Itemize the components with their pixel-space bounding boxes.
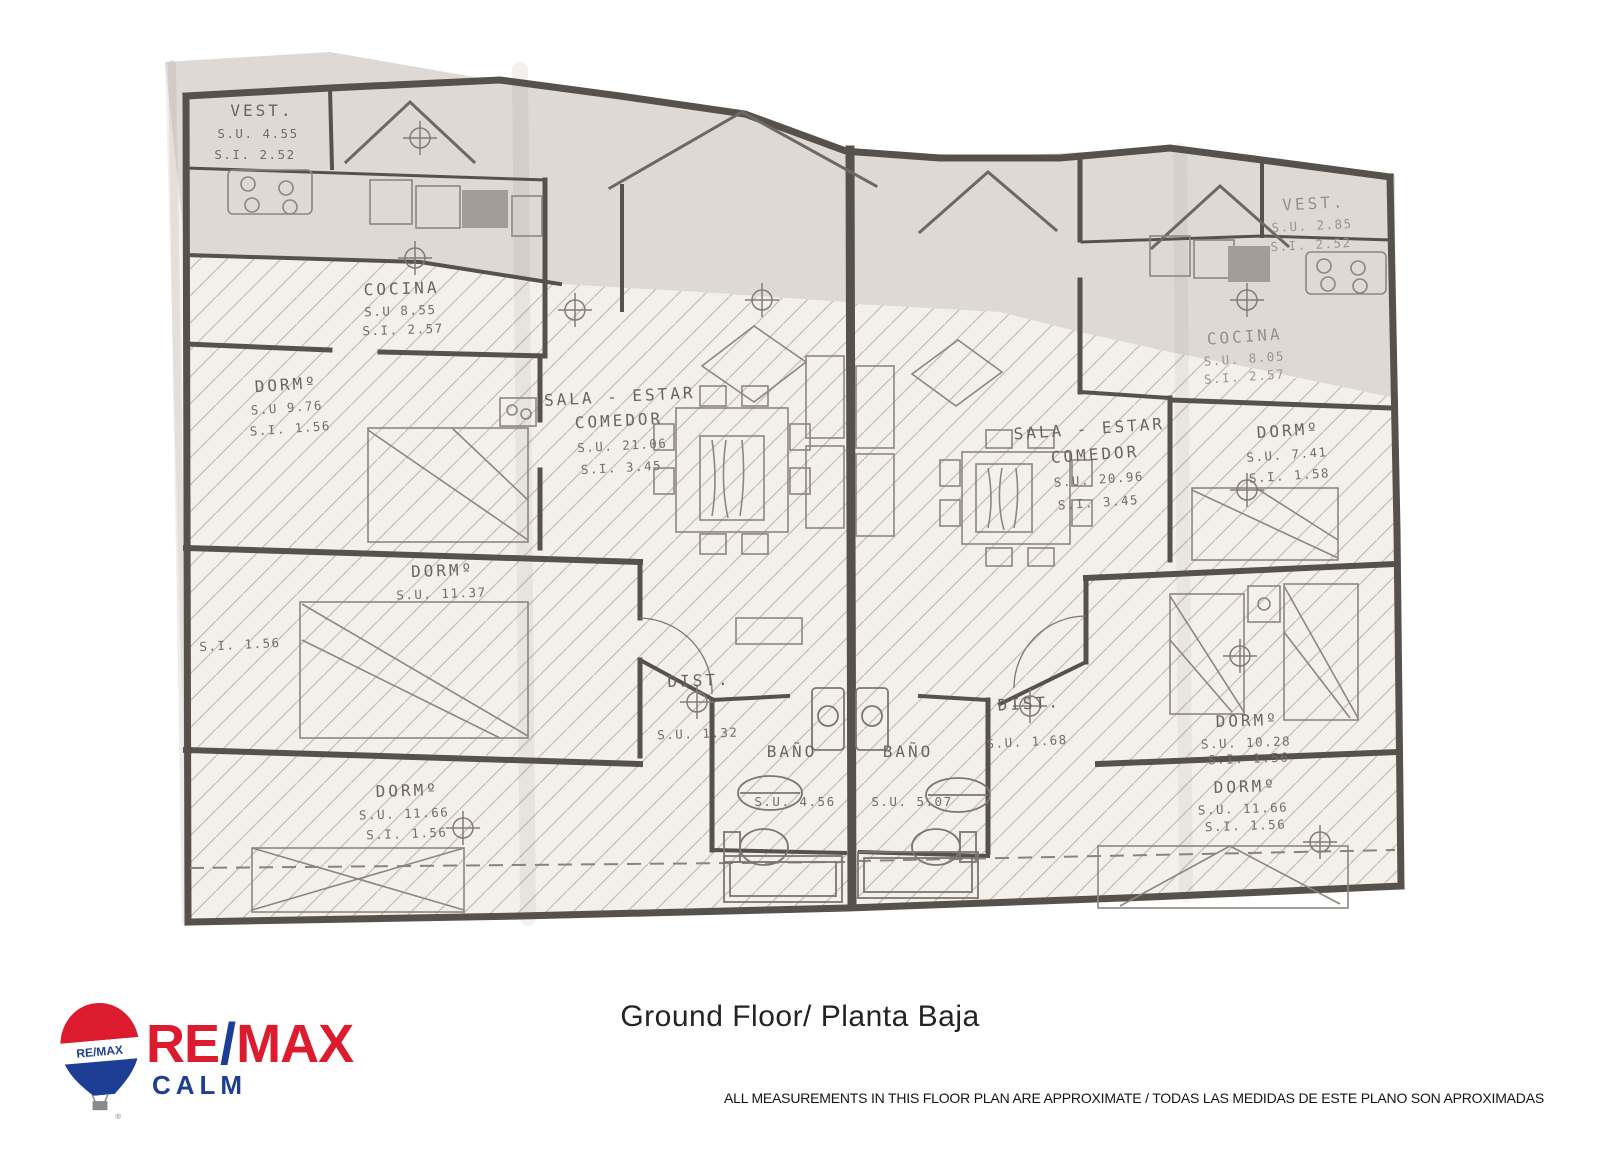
registered-mark: ® <box>115 1112 121 1121</box>
svg-text:DORMº: DORMº <box>375 780 439 801</box>
measurements-disclaimer: ALL MEASUREMENTS IN THIS FLOOR PLAN ARE … <box>724 1090 1544 1106</box>
svg-text:S.U. 4.55: S.U. 4.55 <box>217 126 298 141</box>
svg-text:VEST.: VEST. <box>1282 192 1346 214</box>
floor-plan-image: VEST. S.U. 4.55 S.I. 2.52 COCINA S.U 8.5… <box>0 0 1600 970</box>
svg-text:S.U 8.55: S.U 8.55 <box>364 302 437 320</box>
balloon-basket <box>92 1095 107 1109</box>
svg-text:DORMº: DORMº <box>1213 776 1277 797</box>
svg-text:S.I. 1.56: S.I. 1.56 <box>1205 817 1287 835</box>
party-wall <box>850 150 852 906</box>
svg-text:DORMº: DORMº <box>1215 710 1279 731</box>
svg-text:DORMº: DORMº <box>411 560 475 581</box>
svg-text:S.I. 1.56: S.I. 1.56 <box>1208 750 1290 768</box>
svg-text:DIST.: DIST. <box>997 692 1061 714</box>
svg-text:S.I. 2.52: S.I. 2.52 <box>214 147 295 162</box>
svg-text:S.U. 11.37: S.U. 11.37 <box>396 584 487 602</box>
room-label-dorm1-right: DORMº S.U. 7.41 S.I. 1.58 <box>1244 418 1330 486</box>
svg-text:VEST.: VEST. <box>230 101 293 120</box>
svg-text:S.U. 1.32: S.U. 1.32 <box>657 725 739 743</box>
svg-text:S.U. 10.28: S.U. 10.28 <box>1201 733 1292 751</box>
svg-text:S.U. 5.07: S.U. 5.07 <box>871 794 952 809</box>
page-title: Ground Floor/ Planta Baja <box>0 1000 1600 1034</box>
svg-text:S.I. 2.57: S.I. 2.57 <box>362 321 444 339</box>
svg-text:S.U. 11.66: S.U. 11.66 <box>1198 799 1289 817</box>
room-label-cocina-right: COCINA S.U. 8.05 S.I. 2.57 <box>1201 324 1287 387</box>
svg-text:BAÑO: BAÑO <box>883 742 934 761</box>
svg-text:COCINA: COCINA <box>363 278 439 300</box>
svg-text:S.U. 4.56: S.U. 4.56 <box>754 794 835 809</box>
svg-text:S.I. 1.56: S.I. 1.56 <box>366 825 448 843</box>
svg-text:S.U. 11.66: S.U. 11.66 <box>359 804 450 822</box>
svg-text:BAÑO: BAÑO <box>767 742 818 761</box>
page: VEST. S.U. 4.55 S.I. 2.52 COCINA S.U 8.5… <box>0 0 1600 1153</box>
office-name: CALM <box>152 1070 247 1101</box>
room-label-cocina-left: COCINA S.U 8.55 S.I. 2.57 <box>361 278 444 339</box>
svg-text:DIST.: DIST. <box>667 670 731 691</box>
